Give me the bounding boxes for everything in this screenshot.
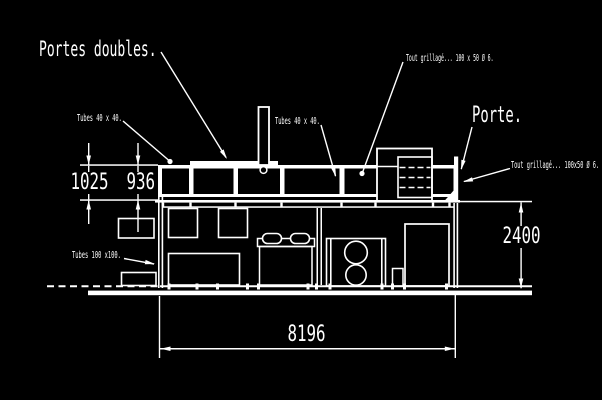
burner-2 [291,234,310,244]
bench [169,254,240,286]
base-skid [88,291,532,296]
window-2 [219,209,248,238]
label-porte: Porte. [472,105,522,127]
label-tubes-40-left: Tubes 40 x 40. [77,114,122,124]
pedestal [393,269,404,287]
leader-portes-doubles [161,52,226,158]
chimney-tube [259,107,270,173]
window-1 [169,209,198,238]
dim-text-1025: 1025 [69,172,110,194]
fan-circle-top [345,241,368,264]
label-portes-doubles: Portes doubles. [39,39,157,60]
label-tubes-40-mid: Tubes 40 x 40. [275,117,320,127]
burner-1 [263,234,282,244]
label-tubes-100: Tubes 100 x100. [72,251,121,261]
label-tout-grillage-right: Tout grillagé... 100x50 Ø 6. [511,161,599,171]
dim-text-936: 936 [125,172,157,194]
leader-tubes40-left [123,121,169,161]
cad-drawing-canvas: Portes doubles. Tubes 40 x 40. Tubes 40 … [0,0,602,400]
interior-fittings [169,209,450,287]
exterior-boxes [119,219,157,286]
stove-body [260,247,313,286]
wall-box-lower [122,273,157,286]
fan-circle-bottom [346,265,366,285]
partition-wall [317,208,319,285]
container-roof [155,200,460,208]
dim-text-8196: 8196 [286,324,327,346]
dim-text-2400: 2400 [501,226,542,248]
wall-box-upper [119,219,155,239]
label-tout-grillage-top: Tout grillagé... 100 x 50 Ø 6. [406,54,494,64]
fan-unit [327,239,386,287]
interior-door [405,224,449,286]
